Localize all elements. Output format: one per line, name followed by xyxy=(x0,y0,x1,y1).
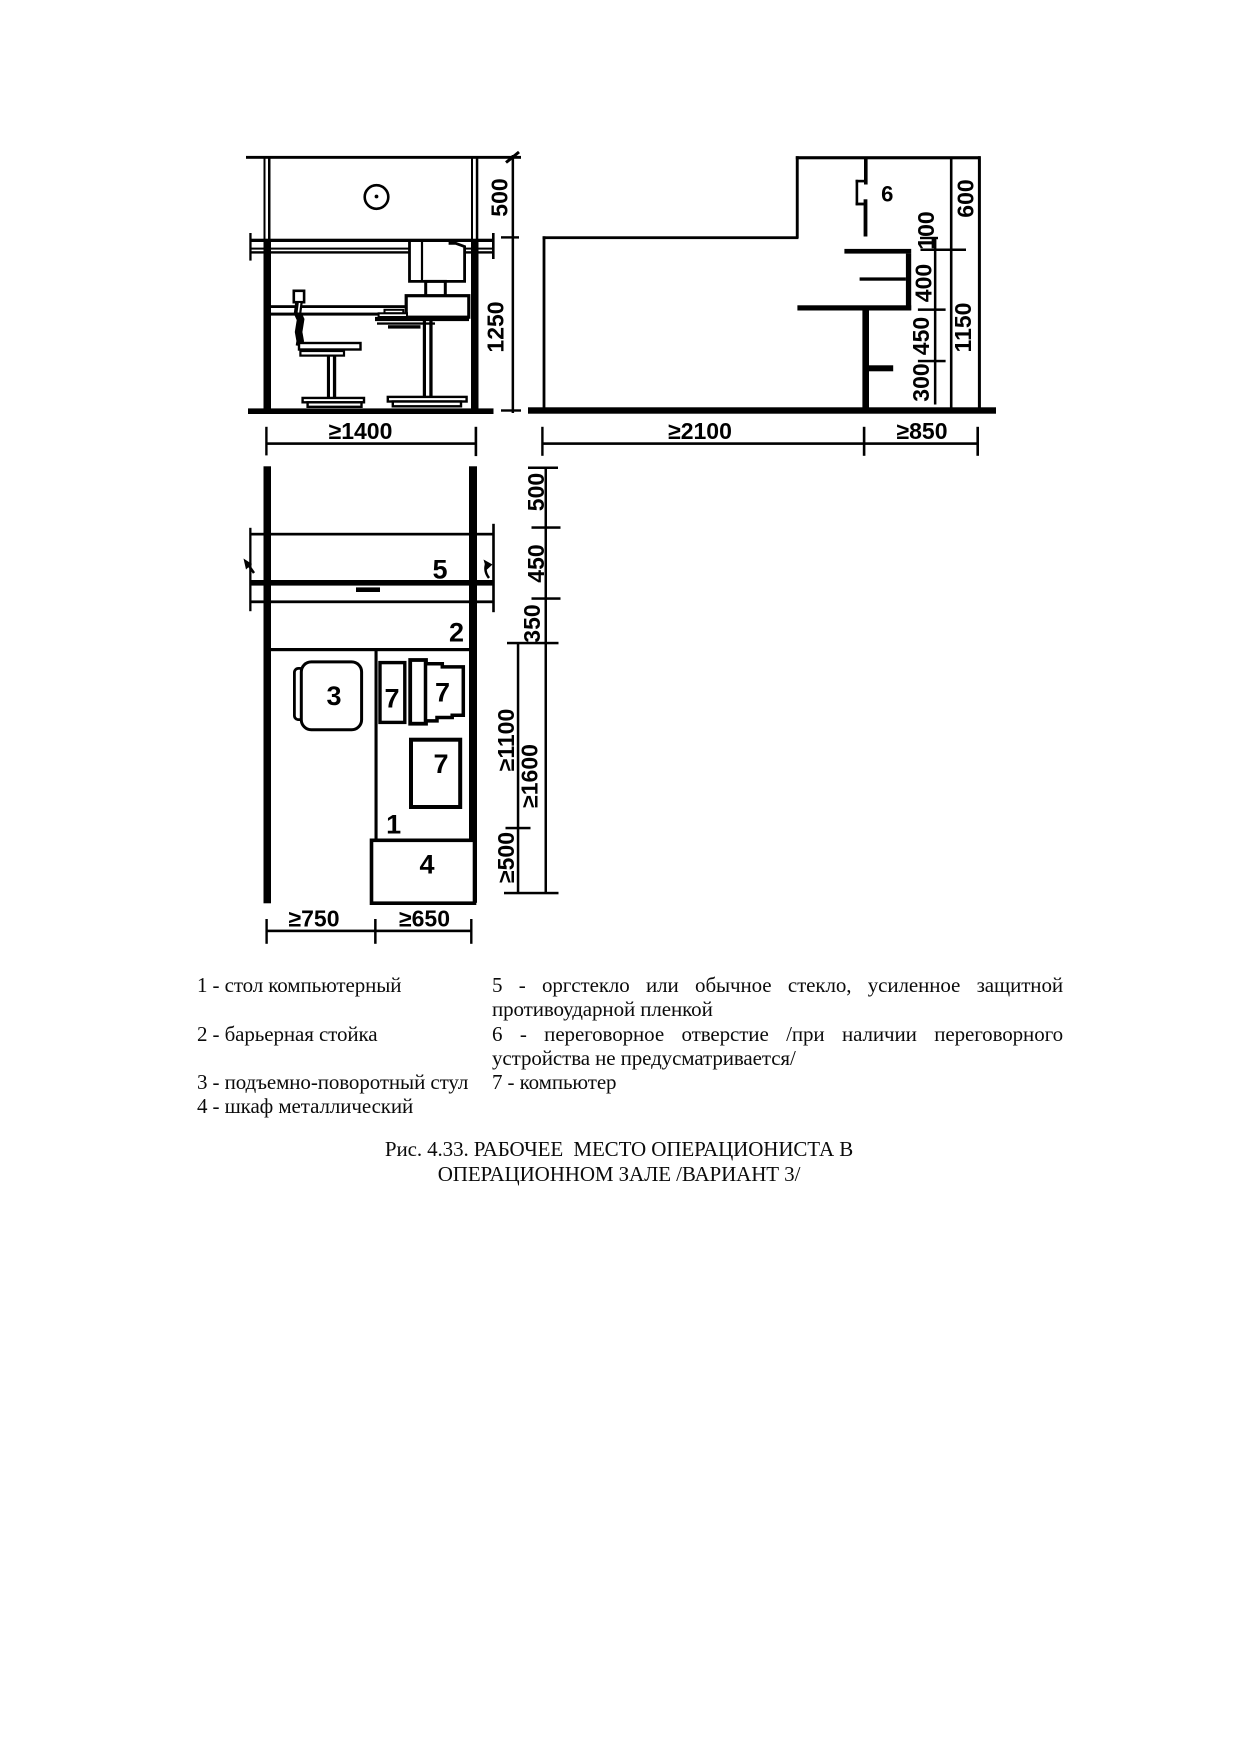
svg-text:350: 350 xyxy=(519,604,545,642)
svg-text:7: 7 xyxy=(384,684,399,714)
svg-text:≥650: ≥650 xyxy=(399,906,450,932)
svg-text:100: 100 xyxy=(913,211,939,249)
svg-text:500: 500 xyxy=(523,473,549,511)
svg-text:450: 450 xyxy=(908,317,934,355)
svg-text:2: 2 xyxy=(449,618,464,648)
svg-text:≥1600: ≥1600 xyxy=(517,744,543,808)
svg-text:≥750: ≥750 xyxy=(289,906,340,932)
svg-text:≥850: ≥850 xyxy=(897,418,948,444)
svg-text:≥1100: ≥1100 xyxy=(493,709,519,772)
svg-text:7: 7 xyxy=(433,749,448,779)
svg-text:1: 1 xyxy=(386,810,401,840)
svg-text:300: 300 xyxy=(908,363,934,401)
svg-text:4: 4 xyxy=(419,850,434,880)
svg-text:≥1400: ≥1400 xyxy=(329,418,393,444)
svg-text:5: 5 xyxy=(432,555,447,585)
svg-text:400: 400 xyxy=(911,264,937,302)
svg-text:≥500: ≥500 xyxy=(493,832,519,883)
svg-text:7: 7 xyxy=(435,678,450,708)
svg-text:3: 3 xyxy=(326,681,341,711)
svg-text:1150: 1150 xyxy=(950,303,976,353)
svg-text:1250: 1250 xyxy=(483,301,509,352)
svg-text:600: 600 xyxy=(953,179,979,217)
svg-text:≥2100: ≥2100 xyxy=(668,418,732,444)
svg-text:450: 450 xyxy=(523,544,549,582)
svg-text:500: 500 xyxy=(487,178,513,216)
svg-text:6: 6 xyxy=(881,182,893,207)
